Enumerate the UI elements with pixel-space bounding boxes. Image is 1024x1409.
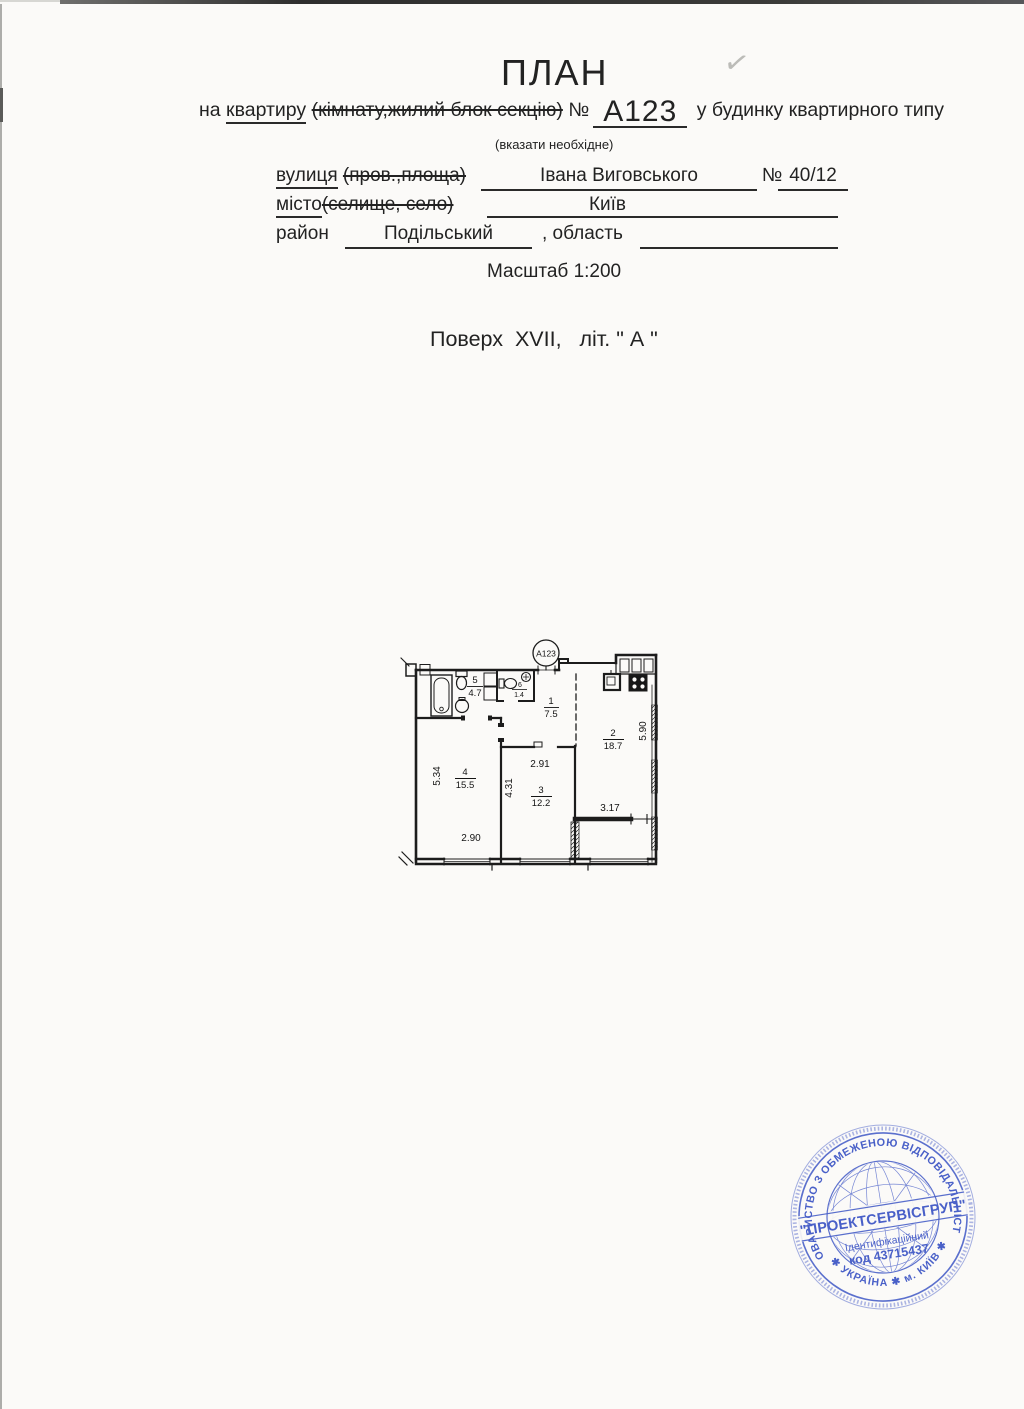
apartment-number: А123 — [593, 100, 687, 128]
district-label: район — [276, 223, 329, 245]
apartment-badge: А123 — [536, 649, 556, 659]
room-3-number: 3 — [538, 785, 543, 796]
street-value: Івана Виговського — [481, 165, 757, 191]
street-row: вулиця (пров.,площа) Івана Виговського №… — [276, 165, 876, 193]
company-stamp: ТОВАРИСТВО З ОБМЕЖЕНОЮ ВІДПОВІДАЛЬНІСТЮ … — [778, 1118, 988, 1318]
room-4-number: 4 — [462, 767, 467, 778]
dim-4-31: 4.31 — [504, 778, 515, 798]
room-2-area: 18.7 — [604, 741, 623, 752]
pencil-checkmark: ✓ — [721, 44, 753, 83]
scan-edge-top — [60, 0, 1024, 4]
wc-sink-icon — [522, 673, 531, 682]
washbasin-icon — [456, 698, 469, 713]
dim-5-34: 5.34 — [432, 766, 443, 786]
kitchen-sink-icon — [604, 670, 620, 690]
street-struck: (пров.,площа) — [343, 165, 466, 186]
district-value: Подільський — [345, 223, 532, 249]
floor-label: Поверх XVII, літ. " А " — [430, 327, 658, 352]
scan-edge-left — [0, 4, 2, 1409]
dim-2-91: 2.91 — [530, 759, 550, 770]
scanned-document-page: { "document": { "title": "ПЛАН", "line1"… — [0, 0, 1024, 1409]
city-row: місто(селище, село) Київ — [276, 194, 876, 222]
dim-5-90: 5.90 — [638, 721, 649, 741]
subtitle-struck-options: (кімнату,жилий блок секцію) — [312, 99, 563, 121]
room-1-area: 7.5 — [544, 709, 557, 720]
cabinet-icon — [484, 673, 497, 700]
number-sign: № — [568, 99, 589, 121]
floor-plan: А123 1 7.5 2 18.7 3 12.2 4 15.5 5 4.7 6 … — [398, 630, 670, 875]
dim-3-17: 3.17 — [600, 803, 620, 814]
building-number-value: 40/12 — [778, 165, 848, 191]
scan-smudge — [0, 88, 3, 122]
wc-toilet-icon — [499, 679, 517, 689]
note-specify: (вказати необхідне) — [495, 137, 613, 152]
city-label: місто — [276, 194, 322, 218]
toilet-icon — [456, 671, 467, 690]
city-value: Київ — [487, 194, 838, 218]
room-6-area: 1.4 — [514, 692, 524, 699]
plan-fixtures — [431, 670, 647, 716]
bathtub-icon — [431, 675, 452, 716]
room-6-number: 6 — [518, 682, 522, 689]
scale-label: Масштаб 1:200 — [487, 261, 621, 283]
room-5-number: 5 — [472, 675, 477, 686]
subtitle-prefix: на — [199, 99, 226, 121]
room-2-number: 2 — [610, 728, 615, 739]
subtitle-line: на квартиру (кімнату,жилий блок секцію) … — [199, 99, 944, 128]
scan-edge-top-left — [0, 0, 60, 2]
street-label: вулиця — [276, 165, 338, 189]
room-5-area: 4.7 — [468, 688, 481, 699]
room-4-area: 15.5 — [456, 780, 475, 791]
dim-2-90: 2.90 — [461, 833, 481, 844]
room-1-number: 1 — [548, 696, 553, 707]
region-label: , область — [542, 223, 623, 245]
page-title: ПЛАН — [501, 52, 609, 94]
city-struck: (селище, село) — [322, 194, 454, 215]
region-value — [640, 223, 838, 249]
district-row: район Подільський , область — [276, 223, 876, 251]
subtitle-suffix: у будинку квартирного типу — [697, 99, 944, 121]
subtitle-underlined-word: квартиру — [226, 99, 306, 124]
room-3-area: 12.2 — [532, 798, 551, 809]
stove-icon — [629, 675, 647, 691]
plan-room-labels: А123 1 7.5 2 18.7 3 12.2 4 15.5 5 4.7 6 … — [455, 649, 624, 810]
